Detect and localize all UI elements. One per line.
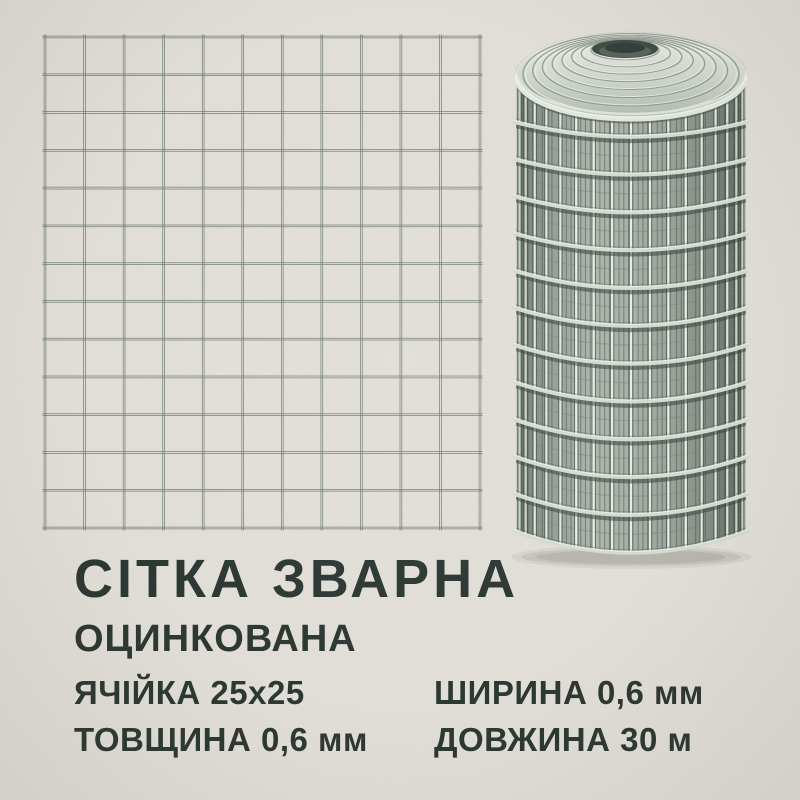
spec-thickness: ТОВЩИНА 0,6 мм <box>74 723 434 756</box>
product-title: СІТКА ЗВАРНА <box>74 552 704 606</box>
product-specs: ЯЧІЙКА 25х25 ШИРИНА 0,6 мм ТОВЩИНА 0,6 м… <box>74 676 704 756</box>
product-banner: СІТКА ЗВАРНА ОЦИНКОВАНА ЯЧІЙКА 25х25 ШИР… <box>0 0 800 800</box>
spec-cell-size: ЯЧІЙКА 25х25 <box>74 676 434 709</box>
product-info: СІТКА ЗВАРНА ОЦИНКОВАНА ЯЧІЙКА 25х25 ШИР… <box>74 552 704 756</box>
spec-width: ШИРИНА 0,6 мм <box>434 676 704 709</box>
product-subtitle: ОЦИНКОВАНА <box>74 620 704 658</box>
spec-length: ДОВЖИНА 30 м <box>434 723 704 756</box>
